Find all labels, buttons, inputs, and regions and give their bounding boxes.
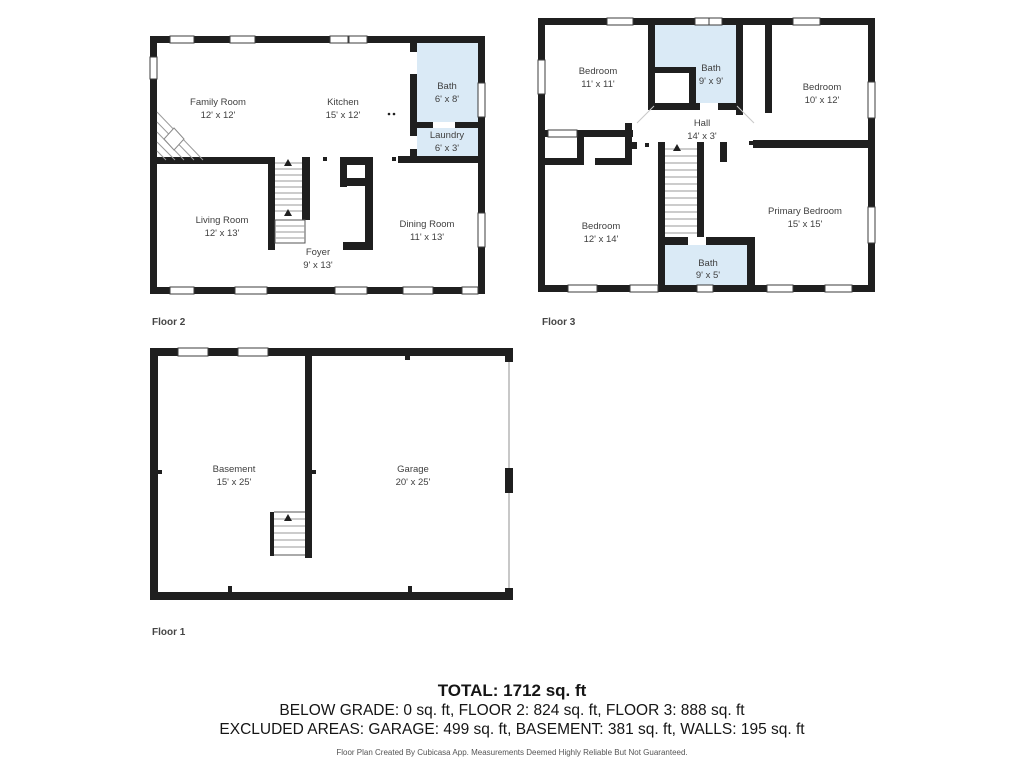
floor3-staircase — [665, 144, 697, 233]
room-label-bedroom-1: Bedroom — [579, 66, 618, 77]
room-label-bedroom-3: Bedroom — [582, 221, 621, 232]
floor-3-drawing: Bedroom 11' x 11' Bath 9' x 9' Bedroom 1… — [530, 10, 885, 300]
room-dims-bedroom-2: 10' x 12' — [805, 95, 840, 106]
room-dims-bedroom-1: 11' x 11' — [581, 79, 615, 90]
floor-areas-text: BELOW GRADE: 0 sq. ft, FLOOR 2: 824 sq. … — [0, 702, 1024, 720]
room-label-bath: Bath — [437, 81, 457, 92]
room-label-dining-room: Dining Room — [400, 219, 455, 230]
room-dims-foyer: 9' x 13' — [303, 260, 333, 271]
room-label-primary-bedroom: Primary Bedroom — [768, 206, 842, 217]
room-label-hall: Hall — [694, 118, 710, 129]
room-dims-living-room: 12' x 13' — [205, 228, 240, 239]
floor3-bath-closet — [655, 73, 689, 103]
floor-1-caption: Floor 1 — [152, 627, 185, 638]
room-label-bedroom-2: Bedroom — [803, 82, 842, 93]
stairs-up-arrow-icon — [284, 514, 292, 521]
floor1-door-ticks — [158, 356, 412, 592]
room-dims-family-room: 12' x 12' — [201, 110, 236, 121]
floor-2-caption: Floor 2 — [152, 317, 185, 328]
floor-2-drawing: Family Room 12' x 12' Kitchen 15' x 12' … — [140, 15, 495, 305]
floor-1-plan: Basement 15' x 25' Garage 20' x 25' — [140, 340, 525, 610]
area-summary: TOTAL: 1712 sq. ft BELOW GRADE: 0 sq. ft… — [0, 681, 1024, 757]
floor2-corner-stairs — [157, 112, 203, 160]
total-area-text: TOTAL: 1712 sq. ft — [0, 681, 1024, 701]
room-label-garage: Garage — [397, 464, 429, 475]
disclaimer-text: Floor Plan Created By Cubicasa App. Meas… — [0, 748, 1024, 757]
room-dims-garage: 20' x 25' — [396, 477, 431, 488]
room-label-foyer: Foyer — [306, 247, 330, 258]
room-dims-basement: 15' x 25' — [217, 477, 252, 488]
room-dims-bath: 6' x 8' — [435, 94, 459, 105]
excluded-areas-text: EXCLUDED AREAS: GARAGE: 499 sq. ft, BASE… — [0, 721, 1024, 739]
room-dims-bath-upper: 9' x 9' — [699, 76, 723, 87]
stairs-up-arrow-icon — [284, 209, 292, 216]
room-label-bath-upper: Bath — [701, 63, 721, 74]
room-label-basement: Basement — [213, 464, 256, 475]
room-label-laundry: Laundry — [430, 130, 465, 141]
room-dims-laundry: 6' x 3' — [435, 143, 459, 154]
floor-plan-page: Family Room 12' x 12' Kitchen 15' x 12' … — [0, 0, 1024, 768]
floor1-staircase — [270, 512, 305, 556]
floor2-staircase — [275, 159, 305, 243]
floor-2-plan: Family Room 12' x 12' Kitchen 15' x 12' … — [140, 15, 495, 305]
room-dims-bedroom-3: 12' x 14' — [584, 234, 619, 245]
floor1-divider-wall — [305, 348, 312, 558]
floor-3-caption: Floor 3 — [542, 317, 575, 328]
room-label-bath-lower: Bath — [698, 258, 718, 269]
floor-1-drawing: Basement 15' x 25' Garage 20' x 25' — [140, 340, 525, 610]
room-dims-dining-room: 11' x 13' — [410, 232, 444, 243]
room-label-living-room: Living Room — [196, 215, 249, 226]
floor1-outer-walls — [150, 348, 513, 600]
room-dims-kitchen: 15' x 12' — [326, 110, 361, 121]
room-label-family-room: Family Room — [190, 97, 246, 108]
floor-3-plan: Bedroom 11' x 11' Bath 9' x 9' Bedroom 1… — [530, 10, 885, 300]
stairs-up-arrow-icon — [673, 144, 681, 151]
room-dims-primary-bedroom: 15' x 15' — [788, 219, 823, 230]
room-dims-hall: 14' x 3' — [687, 131, 717, 142]
room-dims-bath-lower: 9' x 5' — [696, 270, 720, 281]
floor1-room-labels: Basement 15' x 25' Garage 20' x 25' — [213, 464, 431, 488]
room-label-kitchen: Kitchen — [327, 97, 359, 108]
